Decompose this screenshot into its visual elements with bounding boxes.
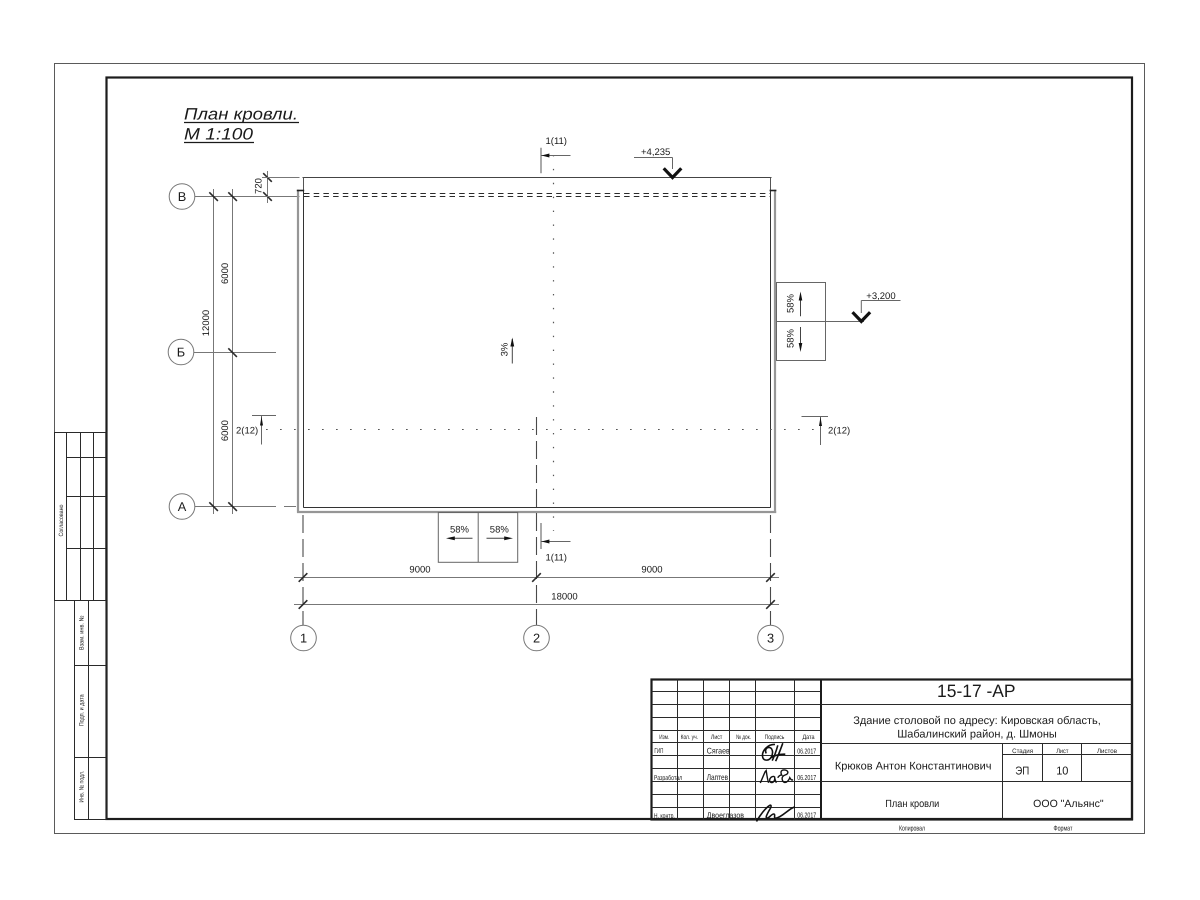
svg-text:Здание столовой по адресу: Кир: Здание столовой по адресу: Кировская обл… xyxy=(853,715,1101,727)
svg-text:ЭП: ЭП xyxy=(1015,766,1029,778)
svg-text:Подпись: Подпись xyxy=(765,734,785,741)
svg-text:Стадия: Стадия xyxy=(1012,748,1033,755)
svg-text:2(12): 2(12) xyxy=(828,426,850,437)
svg-text:9000: 9000 xyxy=(409,565,430,576)
svg-text:№ док.: № док. xyxy=(736,734,751,741)
svg-text:В: В xyxy=(178,189,187,204)
svg-text:18000: 18000 xyxy=(551,592,577,603)
svg-text:ГИП: ГИП xyxy=(654,748,663,755)
svg-text:2: 2 xyxy=(533,631,540,646)
svg-text:Б: Б xyxy=(177,345,185,360)
svg-text:06.2017: 06.2017 xyxy=(797,773,816,782)
svg-text:1: 1 xyxy=(300,631,307,646)
svg-text:Лист: Лист xyxy=(711,734,722,741)
svg-text:9000: 9000 xyxy=(641,565,662,576)
svg-text:3: 3 xyxy=(767,631,774,646)
svg-text:ООО "Альянс": ООО "Альянс" xyxy=(1033,798,1104,810)
svg-text:58%: 58% xyxy=(490,525,510,536)
svg-text:10: 10 xyxy=(1056,766,1068,778)
svg-text:Шабалинский район, д. Шмоны: Шабалинский район, д. Шмоны xyxy=(897,728,1057,740)
svg-text:6000: 6000 xyxy=(220,420,231,441)
svg-text:План кровли: План кровли xyxy=(885,799,939,810)
svg-text:15-17 -АР: 15-17 -АР xyxy=(937,681,1016,701)
svg-text:Согласовано: Согласовано xyxy=(58,504,65,536)
svg-text:М 1:100: М 1:100 xyxy=(184,126,254,144)
svg-text:Дата: Дата xyxy=(802,734,814,741)
svg-text:06.2017: 06.2017 xyxy=(797,811,816,820)
svg-text:Крюков Антон Константинович: Крюков Антон Константинович xyxy=(835,760,992,772)
svg-text:Разработал: Разработал xyxy=(654,774,682,782)
svg-text:Лаптев: Лаптев xyxy=(707,773,728,782)
svg-text:58%: 58% xyxy=(786,293,797,313)
svg-text:План кровли.: План кровли. xyxy=(184,106,298,124)
svg-text:58%: 58% xyxy=(786,328,797,348)
svg-text:3%: 3% xyxy=(500,342,511,356)
svg-text:Изм.: Изм. xyxy=(659,734,669,741)
svg-text:1(11): 1(11) xyxy=(546,553,567,564)
svg-text:Подп. и дата: Подп. и дата xyxy=(79,694,86,726)
svg-text:Инв. № подл.: Инв. № подл. xyxy=(79,770,86,802)
svg-text:Взам. инв. №: Взам. инв. № xyxy=(79,615,86,650)
svg-text:Листов: Листов xyxy=(1097,748,1118,755)
svg-text:А: А xyxy=(178,499,187,514)
svg-text:58%: 58% xyxy=(450,525,470,536)
svg-text:Формат: Формат xyxy=(1054,823,1074,832)
svg-text:Двоеглазов: Двоеглазов xyxy=(707,811,744,820)
svg-text:Сягаев: Сягаев xyxy=(707,746,730,755)
svg-text:Копировал: Копировал xyxy=(899,823,925,832)
svg-text:6000: 6000 xyxy=(220,263,231,284)
svg-text:+4,235: +4,235 xyxy=(641,147,670,158)
svg-text:Лист: Лист xyxy=(1056,748,1068,755)
svg-text:1(11): 1(11) xyxy=(546,136,567,147)
svg-text:2(12): 2(12) xyxy=(236,426,258,437)
svg-text:06.2017: 06.2017 xyxy=(797,747,816,756)
svg-text:Кол. уч.: Кол. уч. xyxy=(681,734,699,741)
svg-text:Н. контр.: Н. контр. xyxy=(654,813,675,820)
svg-text:12000: 12000 xyxy=(201,310,212,336)
svg-text:720: 720 xyxy=(253,178,264,194)
